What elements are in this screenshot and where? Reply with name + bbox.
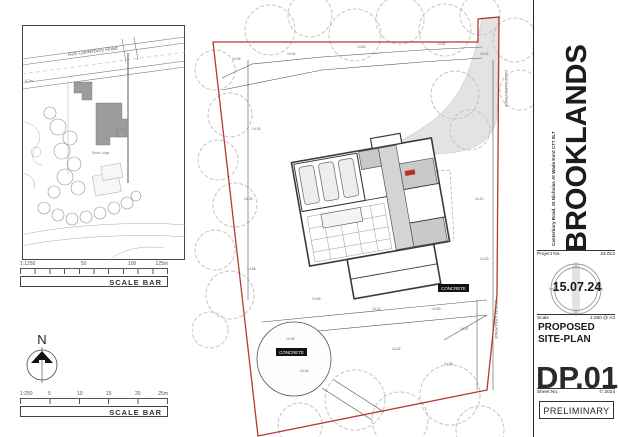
svg-text:14.39: 14.39 [244,197,253,201]
svg-text:14.05: 14.05 [232,57,241,61]
scale-tick-label: 50 [81,261,87,267]
north-arrow: N [22,332,64,384]
utility [359,148,382,169]
svg-text:14.21: 14.21 [480,52,489,56]
scale-row: Scale 1:250 @ A3 [537,316,615,321]
svg-text:14.60: 14.60 [300,369,309,373]
drawing-title-line1: PROPOSED [538,322,595,334]
fence-label-right: MT POST & RAIL FENCE [494,300,498,340]
concrete-label-upper: CONCRETE [438,284,469,292]
scale-tick-label: 5 [48,391,51,397]
drawing-title: PROPOSED SITE-PLAN [538,322,595,346]
building-label: Dene Lodge [92,151,110,155]
scale-bar-label: SCALE BAR [20,406,168,417]
concrete-label-lower: CONCRETE [276,348,307,356]
sheet-label: Sheet No. [537,390,558,395]
status-badge: PRELIMINARY [539,401,614,419]
svg-text:CONCRETE: CONCRETE [279,350,304,355]
svg-text:14.54: 14.54 [287,52,296,56]
scale-value: 1:250 @ A3 [590,316,615,321]
scale-ratio: 1:1250 [20,261,35,267]
drawing-sheet: A28 Canterbury Road 8.7m Dene Lodge [0,0,618,437]
svg-text:14.68: 14.68 [247,267,256,271]
titleblock-rule [537,250,615,251]
svg-text:14.65: 14.65 [312,297,321,301]
project-no-label: Project No. [537,252,561,257]
svg-text:14.58: 14.58 [444,362,453,366]
scale-tick-label: 10 [77,391,83,397]
spot-height-label: 8.7m [25,79,33,83]
scale-bar-1250: 1:1250 50 100 125m SCALE BAR [20,261,168,287]
titleblock-divider [533,0,534,437]
north-label: N [37,332,46,347]
scale-tick-label: 20 [135,391,141,397]
project-no-value: 24.012 [600,252,615,257]
sheet-row: Sheet No. © 2024 [537,390,615,395]
project-name: BROOKLANDS [561,70,594,252]
scale-end-label: 25m [158,391,168,397]
svg-text:14.12: 14.12 [475,197,484,201]
drawing-title-line2: SITE-PLAN [538,334,595,346]
titleblock-rule [537,314,615,315]
scale-end-label: 125m [155,261,168,267]
scale-ratio: 1:250 [20,391,33,397]
turning-circle [257,322,331,396]
svg-text:14.80: 14.80 [432,307,441,311]
scale-bar-250: 1:250 5 10 15 20 25m SCALE BAR [20,391,168,417]
date-value: 15.07.24 [538,280,616,294]
scale-ticks [20,398,168,404]
location-plan: A28 Canterbury Road 8.7m Dene Lodge [22,25,185,260]
svg-text:14.47: 14.47 [460,327,469,331]
svg-text:14.30: 14.30 [252,127,261,131]
project-address: Canterbury Road, St Nicholas At Wade Ken… [551,126,556,246]
titleblock-rule [537,388,615,389]
svg-text:14.33: 14.33 [480,257,489,261]
site-plan: CONCRETE CONCRETE MT POST & RAIL FENCE C… [192,0,533,437]
project-no-row: Project No. 24.012 [537,252,615,257]
fence-label-upper: CLOSE BOARD FENCE [504,70,508,108]
scale-bar-label: SCALE BAR [20,276,168,287]
svg-text:14.42: 14.42 [392,347,401,351]
sheet-value: © 2024 [599,390,615,395]
svg-text:14.52: 14.52 [437,42,446,46]
svg-text:14.63: 14.63 [357,45,366,49]
scale-ticks [20,268,168,274]
scale-tick-label: 100 [128,261,136,267]
svg-text:14.24: 14.24 [372,307,381,311]
svg-text:14.35: 14.35 [286,337,295,341]
scale-tick-label: 15 [106,391,112,397]
scale-label: Scale [537,316,549,321]
proposed-building [290,128,457,305]
svg-text:CONCRETE: CONCRETE [441,286,466,291]
